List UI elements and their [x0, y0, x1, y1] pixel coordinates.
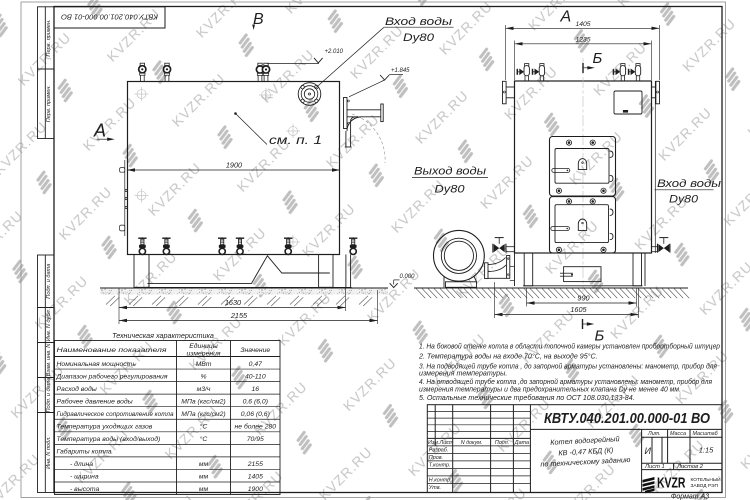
- svg-text:мм: мм: [199, 486, 209, 493]
- svg-text:2155: 2155: [247, 461, 263, 468]
- svg-text:Единицы: Единицы: [189, 342, 217, 350]
- svg-text:1900: 1900: [226, 160, 242, 169]
- svg-text:Расход воды: Расход воды: [57, 385, 97, 393]
- svg-text:5. Остальные технические треб: 5. Остальные технические требования по О…: [419, 394, 635, 402]
- svg-text:Температура уходящих газов: Температура уходящих газов: [57, 423, 153, 431]
- svg-text:Наименование показателя: Наименование показателя: [57, 347, 167, 354]
- svg-text:KVZR: KVZR: [657, 475, 686, 492]
- svg-text:А: А: [560, 9, 572, 26]
- svg-text:Масштаб: Масштаб: [693, 431, 719, 437]
- svg-text:Значение: Значение: [240, 347, 270, 354]
- svg-text:А: А: [93, 121, 106, 141]
- svg-text:40-110: 40-110: [245, 373, 266, 380]
- svg-text:МВт: МВт: [196, 361, 212, 368]
- svg-text:измерения температуры и два пр: измерения температуры и два предохраните…: [419, 385, 681, 393]
- svg-text:не более 280: не более 280: [235, 423, 277, 431]
- svg-text:см. п. 1: см. п. 1: [269, 135, 322, 147]
- svg-text:Лист 1: Лист 1: [644, 464, 665, 470]
- svg-text:Подп.: Подп.: [495, 440, 509, 446]
- svg-text:Масса: Масса: [670, 431, 686, 437]
- svg-text:измерения: измерения: [186, 350, 220, 357]
- svg-text:1405: 1405: [248, 474, 263, 481]
- svg-text:КВТУ.040.201.00.000-01 ВО: КВТУ.040.201.00.000-01 ВО: [544, 411, 710, 427]
- svg-text:70/95: 70/95: [247, 436, 264, 443]
- svg-text:Температура воды (вход/выход): Температура воды (вход/выход): [57, 435, 161, 443]
- svg-text:мм: мм: [199, 461, 209, 468]
- svg-text:Н.контр.: Н.контр.: [429, 478, 452, 484]
- svg-text:Рабочее давление воды: Рабочее давление воды: [57, 397, 133, 405]
- svg-text:- длина: - длина: [70, 460, 93, 468]
- svg-text:°С: °С: [200, 435, 208, 443]
- svg-text:1900: 1900: [248, 486, 263, 493]
- svg-text:°С: °С: [200, 423, 208, 431]
- svg-text:Подп. и дата: Подп. и дата: [46, 377, 52, 412]
- svg-text:%: %: [200, 373, 206, 380]
- svg-text:Утв.: Утв.: [428, 485, 441, 491]
- svg-text:0.000: 0.000: [400, 274, 416, 280]
- svg-text:Дата: Дата: [514, 440, 529, 446]
- svg-text:N докум.: N докум.: [461, 440, 483, 446]
- svg-text:0,47: 0,47: [249, 361, 262, 368]
- svg-text:МПа (кгс/см2): МПа (кгс/см2): [181, 411, 225, 418]
- svg-text:16: 16: [252, 386, 260, 393]
- svg-text:2155: 2155: [230, 311, 248, 320]
- svg-text:1405: 1405: [575, 21, 590, 28]
- svg-text:измерения температуры.: измерения температуры.: [419, 370, 507, 378]
- svg-text:1. На боковой стенке котла в: 1. На боковой стенке котла в области топ…: [419, 343, 720, 351]
- svg-text:Вход воды: Вход воды: [657, 178, 721, 190]
- svg-text:Разраб.: Разраб.: [429, 448, 449, 454]
- svg-text:Перв. примен.: Перв. примен.: [46, 19, 52, 56]
- svg-text:Т.контр.: Т.контр.: [429, 463, 451, 469]
- svg-text:+1.845: +1.845: [391, 68, 410, 74]
- svg-text:м3/ч: м3/ч: [197, 386, 211, 393]
- svg-text:Взам. инв. N: Взам. инв. N: [46, 343, 52, 377]
- svg-text:990: 990: [577, 294, 589, 303]
- svg-text:КВТУ.040.201.00.000-01 ВО: КВТУ.040.201.00.000-01 ВО: [61, 12, 158, 21]
- svg-text:1235: 1235: [575, 36, 590, 43]
- svg-text:Листов 2: Листов 2: [676, 464, 704, 470]
- svg-text:Выход воды: Выход воды: [414, 165, 486, 177]
- svg-text:Номинальная мощность: Номинальная мощность: [57, 361, 137, 368]
- svg-text:Инв. N дубл.: Инв. N дубл.: [46, 309, 52, 341]
- svg-text:Лит.: Лит.: [647, 431, 661, 437]
- svg-text:Dy80: Dy80: [669, 193, 698, 205]
- svg-text:2. Температура воды на входе: 2. Температура воды на входе 70°С, на вы…: [418, 353, 598, 361]
- svg-text:Пров.: Пров.: [429, 455, 443, 461]
- svg-text:Изм.Лист: Изм.Лист: [428, 440, 454, 446]
- svg-text:Гидравлическое сопротивление к: Гидравлическое сопротивление котла: [57, 410, 174, 418]
- svg-text:- высота: - высота: [70, 486, 99, 493]
- svg-text:МПа (кгс/см2): МПа (кгс/см2): [181, 398, 225, 405]
- svg-text:1605: 1605: [570, 305, 587, 314]
- svg-text:0,06 (0,6): 0,06 (0,6): [241, 411, 270, 418]
- svg-text:Габариты котла: Габариты котла: [57, 448, 112, 456]
- svg-text:1:15: 1:15: [699, 446, 714, 455]
- svg-text:Инв. N подл.: Инв. N подл.: [46, 436, 52, 469]
- svg-text:1630: 1630: [225, 298, 241, 307]
- svg-text:мм: мм: [199, 474, 209, 481]
- svg-text:Б: Б: [593, 50, 603, 67]
- svg-text:Подп. и дата: Подп. и дата: [46, 264, 52, 299]
- svg-text:ЗАВОД РЭП: ЗАВОД РЭП: [691, 483, 719, 489]
- svg-text:Техническая характеристика: Техническая характеристика: [112, 331, 214, 340]
- svg-text:+2.010: +2.010: [325, 49, 344, 55]
- svg-text:Dy80: Dy80: [403, 32, 434, 44]
- svg-text:Перв. примен.: Перв. примен.: [46, 85, 52, 122]
- svg-text:Вход воды: Вход воды: [385, 16, 452, 28]
- svg-text:Dy80: Dy80: [435, 184, 465, 196]
- svg-text:- ширина: - ширина: [70, 474, 99, 481]
- svg-text:0,6 (6,0): 0,6 (6,0): [243, 398, 268, 405]
- svg-text:Формат А3: Формат А3: [671, 494, 709, 500]
- svg-text:И: И: [645, 446, 652, 456]
- svg-text:Диапазон рабочего регулировани: Диапазон рабочего регулирования: [56, 372, 168, 380]
